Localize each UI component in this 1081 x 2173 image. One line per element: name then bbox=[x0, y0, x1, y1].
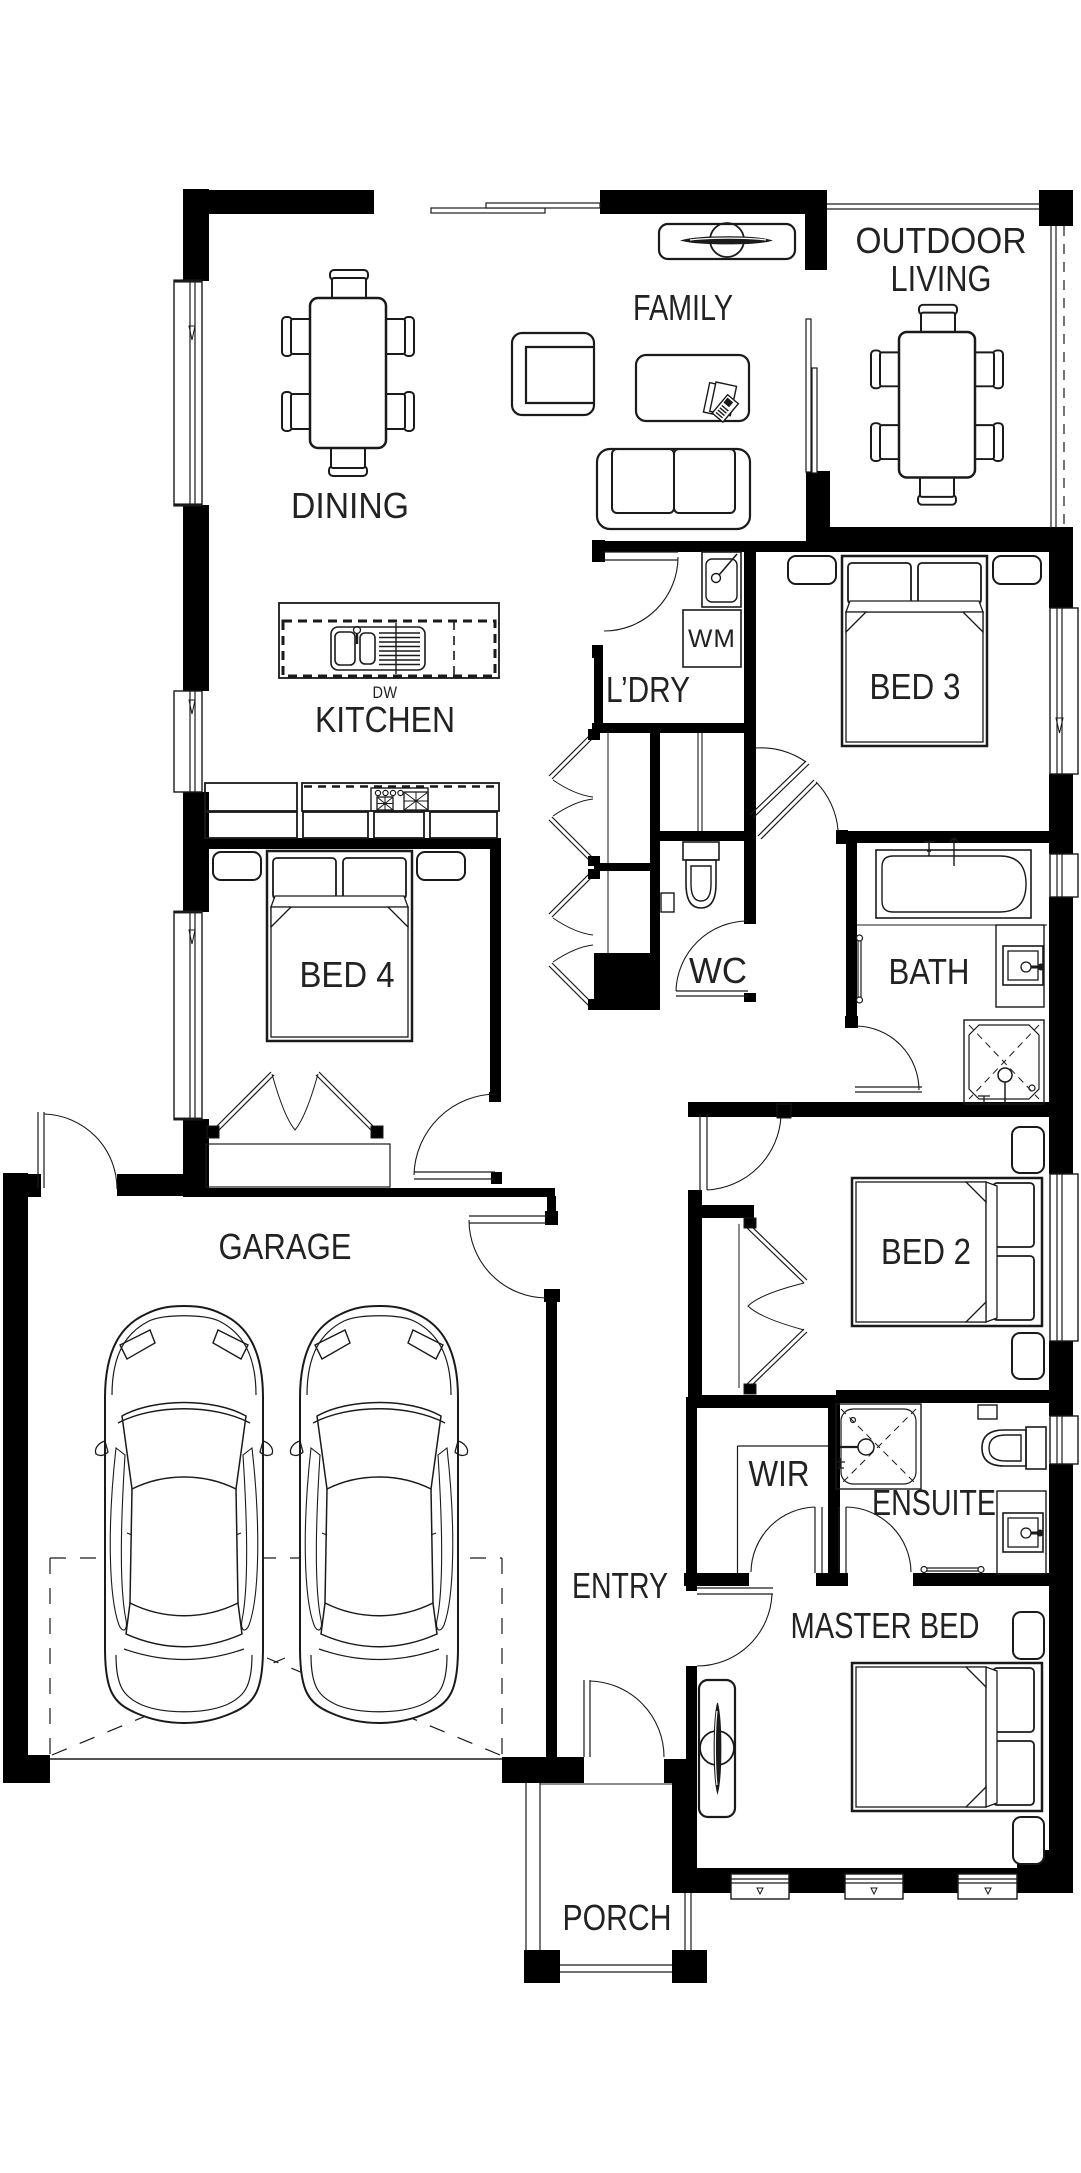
svg-text:OUTDOOR: OUTDOOR bbox=[856, 220, 1027, 261]
svg-text:WM: WM bbox=[688, 625, 736, 653]
svg-text:PORCH: PORCH bbox=[563, 1897, 672, 1938]
svg-text:BED 2: BED 2 bbox=[881, 1231, 971, 1272]
svg-text:GARAGE: GARAGE bbox=[219, 1226, 352, 1267]
svg-text:MASTER BED: MASTER BED bbox=[791, 1605, 980, 1646]
svg-text:BED 4: BED 4 bbox=[300, 954, 395, 995]
svg-text:LIVING: LIVING bbox=[891, 258, 992, 299]
svg-text:WC: WC bbox=[689, 950, 747, 991]
svg-text:ENTRY: ENTRY bbox=[572, 1565, 668, 1606]
svg-text:ENSUITE: ENSUITE bbox=[872, 1482, 996, 1523]
svg-text:DW: DW bbox=[373, 683, 398, 702]
svg-text:KITCHEN: KITCHEN bbox=[315, 699, 455, 740]
svg-text:DINING: DINING bbox=[291, 485, 409, 526]
svg-text:BED 3: BED 3 bbox=[870, 666, 961, 707]
svg-text:BATH: BATH bbox=[889, 951, 970, 992]
svg-text:L’DRY: L’DRY bbox=[606, 669, 690, 710]
svg-text:FAMILY: FAMILY bbox=[633, 287, 733, 328]
svg-text:WIR: WIR bbox=[749, 1453, 810, 1494]
